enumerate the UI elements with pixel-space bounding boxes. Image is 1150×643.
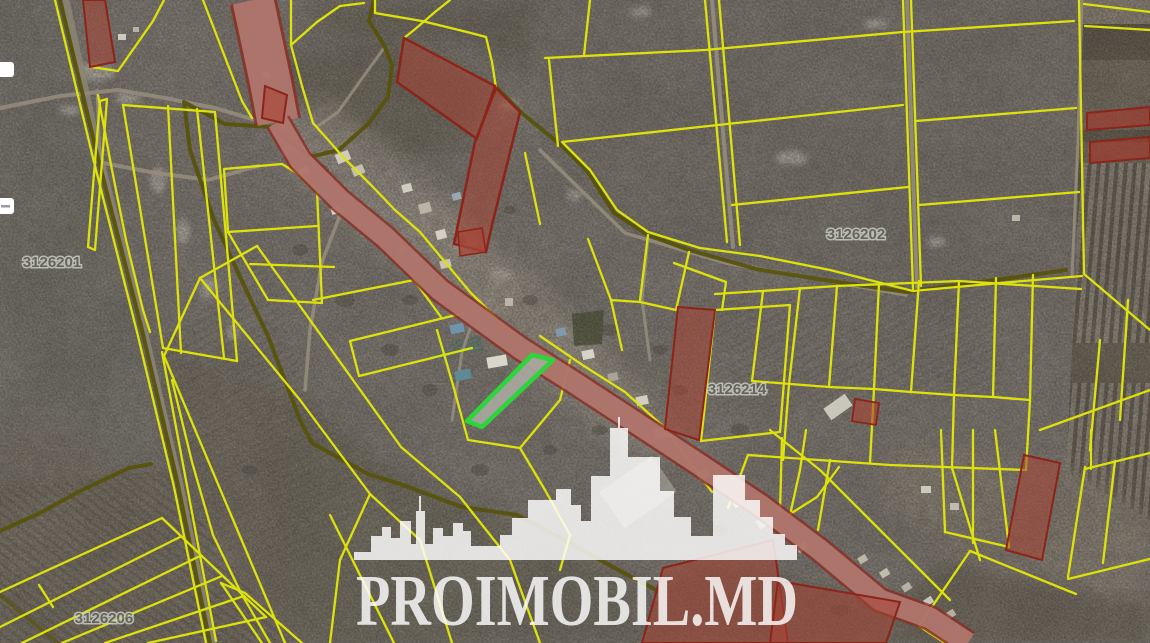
svg-text:3126206: 3126206 — [75, 610, 133, 627]
svg-text:3126201: 3126201 — [23, 254, 81, 271]
svg-text:3126202: 3126202 — [827, 226, 885, 243]
svg-text:PROIMOBIL.MD: PROIMOBIL.MD — [356, 560, 798, 641]
svg-text:3126214: 3126214 — [708, 381, 767, 398]
